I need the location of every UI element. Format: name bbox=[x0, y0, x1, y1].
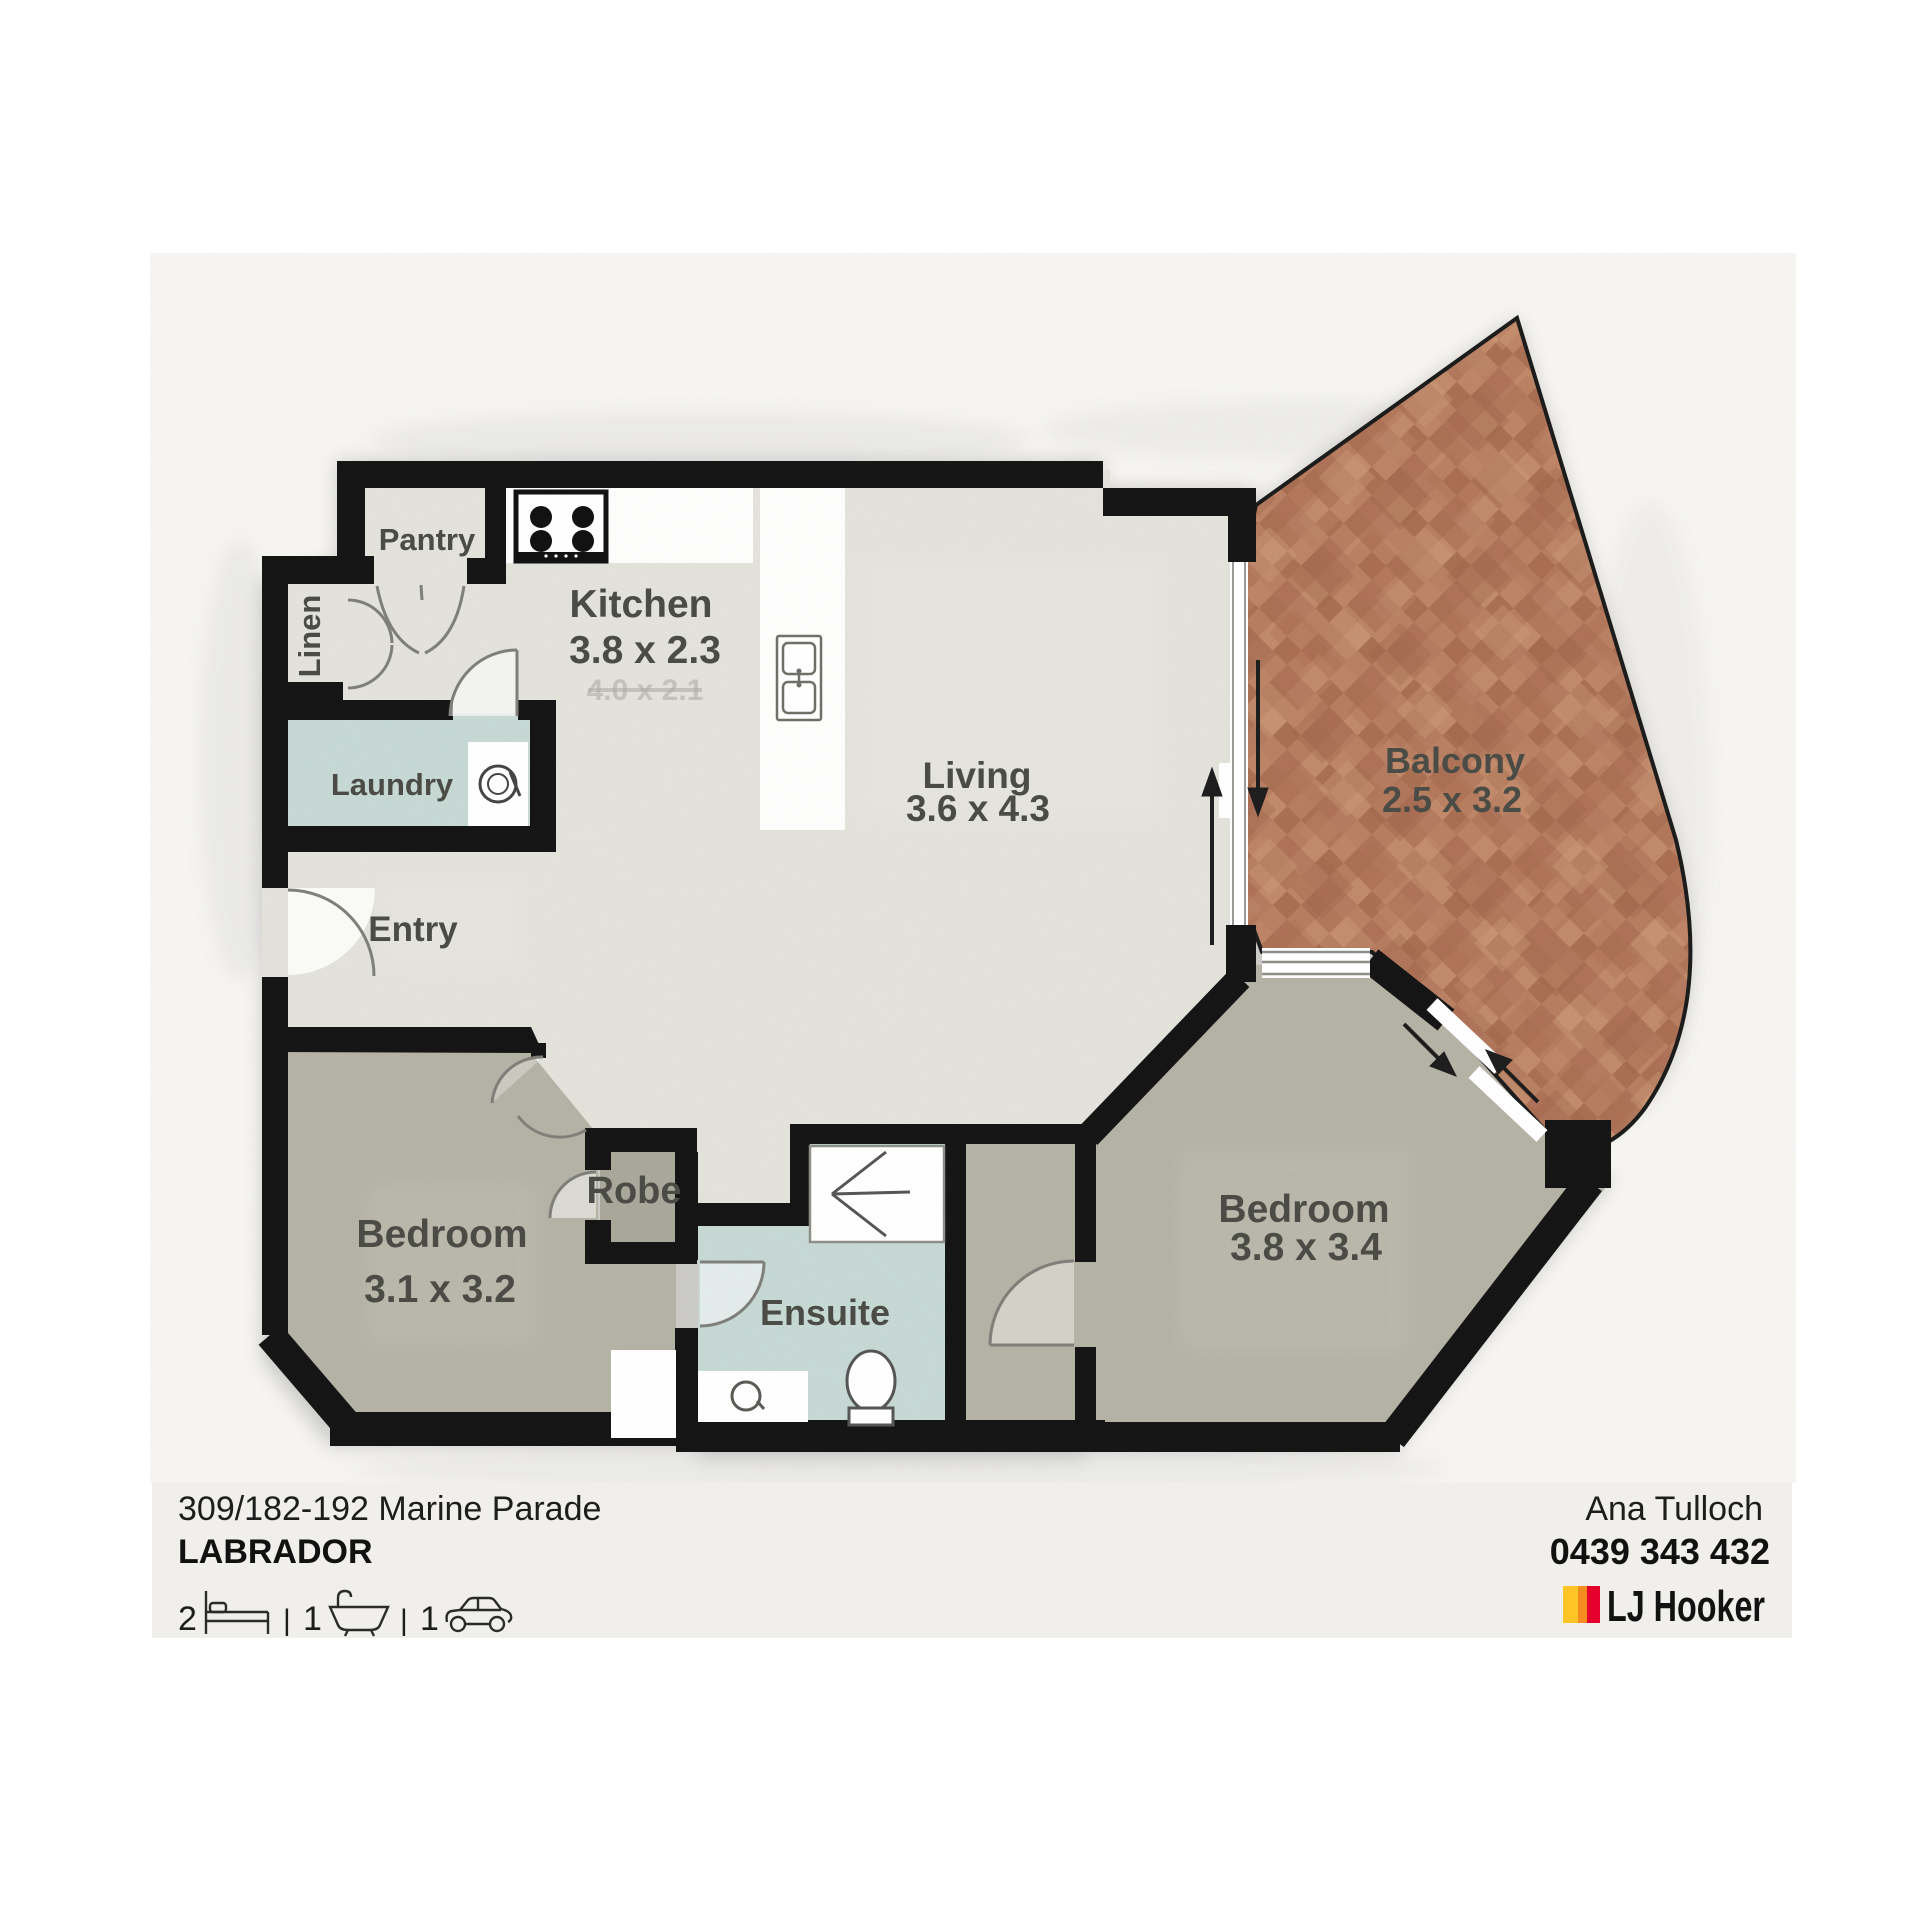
svg-text:Ana Tulloch: Ana Tulloch bbox=[1585, 1490, 1763, 1528]
svg-text:|: | bbox=[283, 1604, 291, 1637]
svg-text:|: | bbox=[400, 1604, 408, 1637]
svg-text:2: 2 bbox=[178, 1600, 197, 1638]
svg-text:1: 1 bbox=[420, 1600, 439, 1638]
svg-text:309/182-192 Marine Parade: 309/182-192 Marine Parade bbox=[178, 1490, 601, 1528]
svg-text:LABRADOR: LABRADOR bbox=[178, 1533, 373, 1571]
svg-text:LJ Hooker: LJ Hooker bbox=[1607, 1582, 1765, 1631]
svg-text:1: 1 bbox=[303, 1600, 322, 1638]
svg-text:0439 343 432: 0439 343 432 bbox=[1550, 1531, 1770, 1572]
